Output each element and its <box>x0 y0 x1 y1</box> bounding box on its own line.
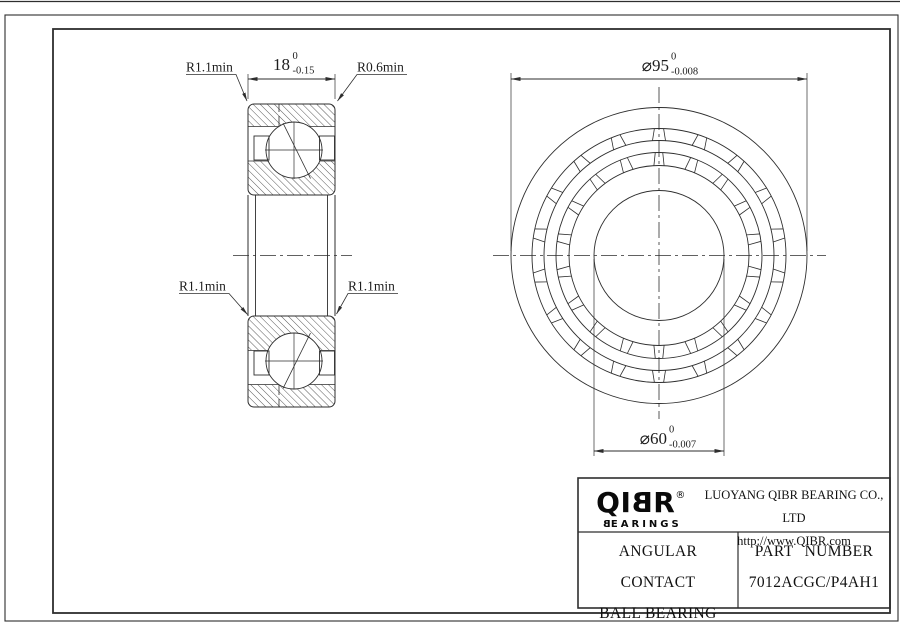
front-view: ⌀95 0 -0.008 ⌀60 0 -0.007 <box>493 52 826 457</box>
part-number-cell: PART NUMBER 7012ACGC/P4AH1 <box>740 536 888 604</box>
radius-label-mid-left: R1.1min <box>179 279 226 294</box>
section-top-half <box>248 104 335 195</box>
product-name-line2: BALL BEARING <box>580 598 736 629</box>
logo-subtext: BEARINGS <box>582 518 700 532</box>
bore-tol-lower: -0.007 <box>669 440 696 451</box>
product-name-line1: ANGULAR CONTACT <box>580 536 736 598</box>
engineering-drawing-page: 18 0 -0.15 R1.1min R0.6min R1.1min R1.1m… <box>0 0 900 636</box>
product-name-cell: ANGULAR CONTACT BALL BEARING <box>580 536 736 604</box>
width-tol-upper: 0 <box>293 51 298 62</box>
part-number-label: PART NUMBER <box>740 536 888 567</box>
logo-wordmark: QIBR® <box>582 481 700 518</box>
dimension-width: 18 0 -0.15 <box>248 51 335 99</box>
width-value: 18 <box>273 55 290 74</box>
company-name: LUOYANG QIBR BEARING CO., LTD <box>700 484 888 530</box>
od-tol-lower: -0.008 <box>671 67 698 78</box>
company-logo: QIBR® BEARINGS <box>582 481 700 531</box>
od-tol-upper: 0 <box>671 52 676 63</box>
bore-value: ⌀60 <box>640 429 667 448</box>
cross-section-view: 18 0 -0.15 R1.1min R0.6min R1.1min R1.1m… <box>179 51 407 407</box>
registered-mark: ® <box>675 490 686 501</box>
radius-label-top-left: R1.1min <box>186 60 233 75</box>
od-value: ⌀95 <box>642 56 669 75</box>
logo-mirrored-b: B <box>631 488 653 518</box>
part-number-value: 7012ACGC/P4AH1 <box>740 567 888 598</box>
company-info: LUOYANG QIBR BEARING CO., LTD http://www… <box>700 484 888 530</box>
bore-tol-upper: 0 <box>669 425 674 436</box>
section-bottom-half <box>248 316 335 407</box>
radius-label-mid-right: R1.1min <box>348 279 395 294</box>
radius-label-top-right: R0.6min <box>357 60 404 75</box>
width-tol-lower: -0.15 <box>293 66 315 77</box>
